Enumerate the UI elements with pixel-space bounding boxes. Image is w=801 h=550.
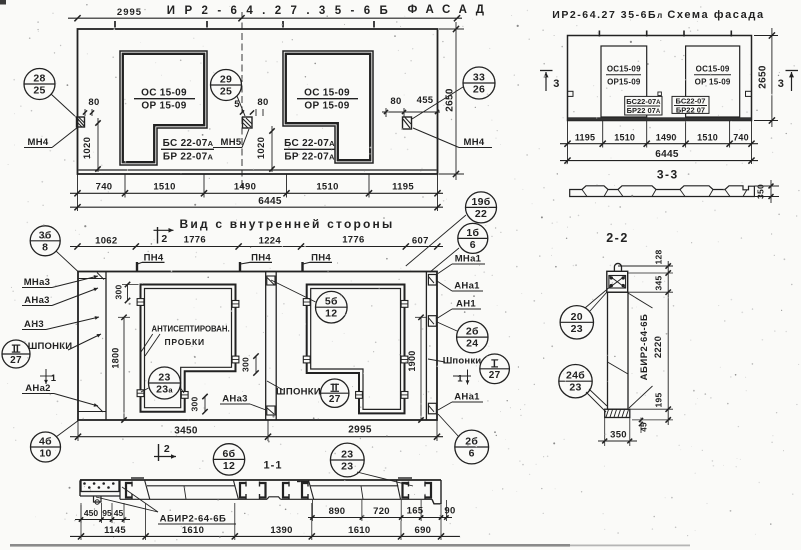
svg-text:1062: 1062: [95, 235, 117, 246]
svg-text:ФАСАД: ФАСАД: [408, 4, 493, 16]
svg-text:22: 22: [475, 208, 487, 220]
svg-text:АБИР2-64-6Б: АБИР2-64-6Б: [160, 514, 227, 525]
svg-text:6445: 6445: [655, 149, 679, 160]
svg-text:ШПОНКИ: ШПОНКИ: [276, 387, 321, 398]
svg-text:1390: 1390: [270, 525, 292, 536]
svg-text:350: 350: [610, 430, 627, 441]
svg-text:4б: 4б: [39, 436, 52, 448]
svg-text:ШПОНКИ: ШПОНКИ: [28, 341, 72, 352]
svg-text:1145: 1145: [104, 525, 126, 536]
svg-text:АНа1: АНа1: [454, 281, 480, 292]
svg-text:33: 33: [473, 72, 485, 84]
svg-text:890: 890: [329, 506, 346, 517]
svg-text:2-2: 2-2: [606, 231, 629, 245]
svg-text:ОС 15-09: ОС 15-09: [141, 88, 187, 99]
svg-text:1776: 1776: [342, 234, 364, 245]
svg-text:740: 740: [96, 182, 113, 193]
svg-text:ОС15-09: ОС15-09: [607, 65, 641, 74]
svg-text:1б: 1б: [466, 227, 479, 239]
svg-text:ОР 15-09: ОР 15-09: [304, 101, 349, 112]
svg-text:ОР 15-09: ОР 15-09: [695, 78, 731, 87]
svg-text:БС22-07А: БС22-07А: [626, 97, 661, 106]
svg-text:6445: 6445: [258, 196, 282, 207]
svg-text:1195: 1195: [392, 182, 414, 193]
svg-text:6б: 6б: [223, 448, 236, 460]
svg-text:БР22 07: БР22 07: [676, 106, 705, 115]
svg-text:455: 455: [417, 95, 434, 106]
svg-text:3-3: 3-3: [657, 168, 679, 182]
svg-text:300: 300: [114, 284, 124, 299]
svg-text:Схема фасада: Схема фасада: [667, 9, 764, 21]
svg-text:БР 22-07А: БР 22-07А: [284, 152, 335, 163]
svg-text:23: 23: [571, 323, 583, 335]
svg-text:АН3: АН3: [24, 319, 44, 330]
svg-text:1610: 1610: [182, 525, 204, 536]
svg-text:БС 22-07А: БС 22-07А: [163, 138, 214, 149]
svg-text:12: 12: [325, 308, 337, 320]
svg-text:29: 29: [220, 74, 232, 86]
svg-text:1510: 1510: [614, 132, 635, 142]
svg-text:МН5: МН5: [221, 137, 242, 148]
svg-text:350: 350: [756, 184, 766, 199]
svg-text:1224: 1224: [259, 235, 282, 246]
svg-text:80: 80: [88, 97, 99, 108]
svg-text:2995: 2995: [117, 7, 142, 18]
svg-text:12: 12: [223, 460, 235, 472]
svg-text:БР 22-07А: БР 22-07А: [163, 152, 214, 163]
svg-text:АНа1: АНа1: [454, 392, 480, 403]
svg-text:1020: 1020: [256, 137, 267, 159]
svg-text:5: 5: [234, 99, 240, 110]
svg-text:БР22 07А: БР22 07А: [627, 106, 661, 115]
svg-text:1490: 1490: [234, 182, 256, 193]
svg-text:27: 27: [489, 370, 501, 381]
svg-text:1020: 1020: [82, 137, 93, 159]
svg-text:БС 22-07А: БС 22-07А: [284, 138, 335, 149]
svg-text:45: 45: [114, 508, 124, 518]
svg-text:720: 720: [373, 506, 390, 517]
svg-text:МНа3: МНа3: [24, 277, 51, 288]
svg-text:1900: 1900: [407, 350, 417, 371]
svg-text:Шпонки: Шпонки: [443, 356, 482, 367]
svg-text:АНа2: АНа2: [25, 383, 51, 394]
svg-text:3б: 3б: [39, 229, 52, 241]
svg-text:26: 26: [473, 84, 485, 96]
svg-text:ИР2-64.27 35-6Бл: ИР2-64.27 35-6Бл: [552, 9, 664, 21]
svg-text:25: 25: [33, 85, 45, 97]
svg-text:МН4: МН4: [464, 137, 485, 148]
svg-text:6: 6: [470, 239, 476, 251]
svg-text:АНа3: АНа3: [24, 295, 50, 306]
svg-text:25: 25: [220, 86, 232, 98]
svg-text:ОС15-09: ОС15-09: [696, 65, 730, 74]
svg-text:1-1: 1-1: [264, 460, 283, 472]
svg-text:45: 45: [640, 422, 649, 432]
svg-text:1510: 1510: [316, 182, 338, 193]
svg-text:300: 300: [241, 357, 251, 372]
svg-text:ОР15-09: ОР15-09: [607, 78, 641, 87]
svg-text:2: 2: [161, 233, 167, 245]
svg-text:1510: 1510: [697, 132, 718, 142]
svg-text:2: 2: [164, 443, 170, 455]
svg-text:23: 23: [158, 372, 170, 384]
svg-text:1800: 1800: [111, 347, 121, 368]
svg-text:23: 23: [341, 461, 353, 473]
svg-text:80: 80: [257, 97, 268, 108]
svg-text:24: 24: [466, 338, 478, 350]
svg-text:2220: 2220: [653, 336, 664, 358]
svg-text:6: 6: [469, 448, 475, 460]
svg-text:АНТИСЕПТИРОВАН.: АНТИСЕПТИРОВАН.: [151, 325, 229, 334]
svg-text:90: 90: [444, 506, 455, 517]
svg-text:24б: 24б: [566, 370, 585, 382]
svg-text:МН4: МН4: [28, 137, 49, 148]
svg-text:128: 128: [654, 249, 664, 264]
svg-text:3: 3: [778, 78, 784, 90]
svg-text:80: 80: [390, 96, 401, 107]
svg-text:АН1: АН1: [456, 299, 476, 310]
svg-text:2650: 2650: [758, 65, 769, 89]
svg-text:345: 345: [654, 275, 664, 290]
svg-text:БС22-07: БС22-07: [676, 97, 706, 106]
svg-text:2б: 2б: [466, 326, 479, 338]
svg-text:2995: 2995: [348, 424, 372, 435]
svg-text:ОС 15-09: ОС 15-09: [304, 88, 350, 99]
svg-text:27: 27: [10, 355, 22, 366]
svg-text:1: 1: [457, 374, 463, 385]
svg-text:ПРОБКИ: ПРОБКИ: [164, 337, 205, 347]
svg-text:5б: 5б: [325, 296, 338, 308]
svg-text:23а: 23а: [156, 384, 173, 396]
svg-text:1510: 1510: [153, 182, 175, 193]
svg-text:607: 607: [412, 235, 429, 246]
svg-text:ИР2-64.27.35-6Б: ИР2-64.27.35-6Б: [167, 5, 397, 17]
svg-text:2650: 2650: [445, 88, 456, 112]
svg-text:АБИР2-64-6Б: АБИР2-64-6Б: [639, 314, 650, 381]
svg-text:1490: 1490: [656, 132, 677, 142]
svg-text:МНа1: МНа1: [455, 254, 482, 265]
svg-text:450: 450: [84, 508, 98, 518]
svg-text:95: 95: [102, 508, 112, 518]
svg-text:1610: 1610: [348, 525, 370, 536]
svg-text:740: 740: [733, 132, 749, 142]
svg-text:1: 1: [51, 373, 57, 384]
svg-text:3450: 3450: [174, 425, 198, 436]
svg-text:ОР 15-09: ОР 15-09: [141, 101, 186, 112]
svg-text:23: 23: [341, 449, 353, 461]
svg-text:195: 195: [654, 392, 664, 407]
svg-text:19б: 19б: [471, 196, 490, 208]
svg-text:Вид с внутренней стороны: Вид с внутренней стороны: [180, 217, 395, 231]
svg-text:165: 165: [407, 506, 424, 517]
svg-text:10: 10: [39, 448, 51, 460]
svg-text:690: 690: [415, 525, 432, 536]
svg-text:3: 3: [553, 78, 559, 90]
svg-text:8: 8: [42, 241, 48, 253]
svg-text:23: 23: [569, 382, 581, 394]
svg-text:1195: 1195: [575, 132, 595, 142]
svg-text:1776: 1776: [184, 234, 206, 245]
svg-text:300: 300: [190, 396, 200, 411]
svg-text:АНа3: АНа3: [222, 394, 248, 405]
svg-text:28: 28: [33, 73, 45, 85]
svg-text:27: 27: [329, 394, 341, 405]
